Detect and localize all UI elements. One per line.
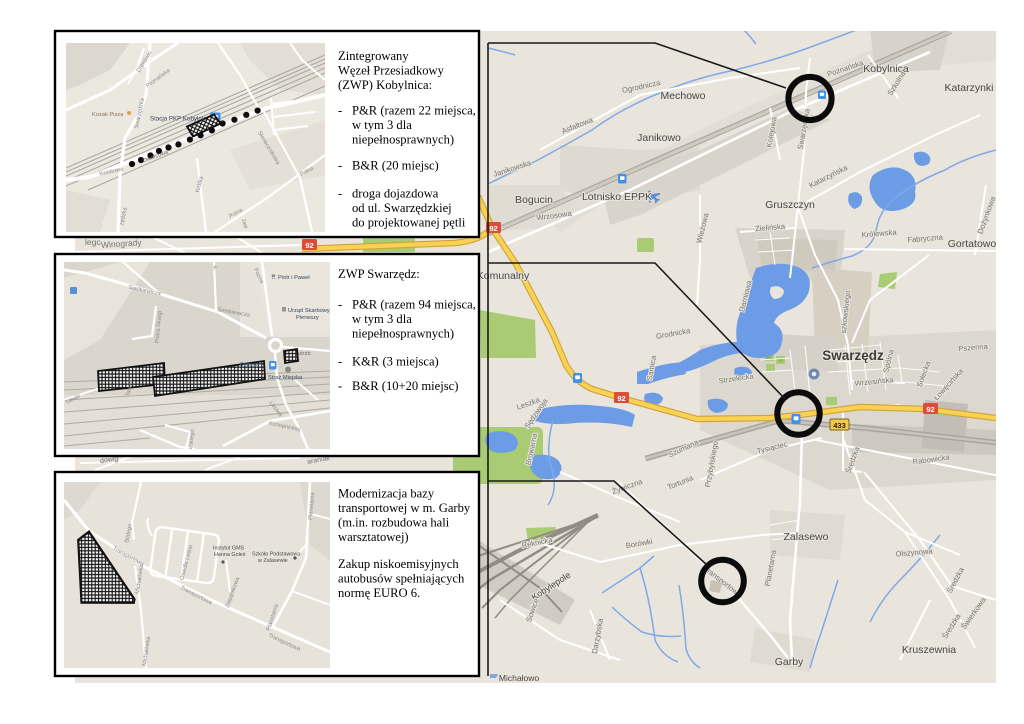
svg-text:autobusów spełniających: autobusów spełniających [338,572,465,586]
svg-text:Katarzynki: Katarzynki [944,82,993,94]
svg-text:Stacja PKP Kobylnic: Stacja PKP Kobylnic [150,116,206,123]
svg-text:Swarzędz: Swarzędz [822,348,884,363]
svg-text:(m.in. rozbudowa hali: (m.in. rozbudowa hali [338,516,450,530]
svg-text:droga dojazdowa: droga dojazdowa [352,187,439,201]
svg-text:Zakup niskoemisyjnych: Zakup niskoemisyjnych [338,557,459,571]
svg-text:ZWP Swarzędz:: ZWP Swarzędz: [338,267,420,281]
svg-text:Pierwszy: Pierwszy [296,315,319,321]
svg-text:Kruszewnia: Kruszewnia [902,644,956,656]
svg-text:Hanna Goleś: Hanna Goleś [214,552,246,558]
svg-text:do projektowanej pętli: do projektowanej pętli [352,216,466,230]
svg-text:w tym 3 dla: w tym 3 dla [352,118,412,132]
svg-text:-: - [338,379,342,393]
svg-text:-: - [338,187,342,201]
svg-text:Węzeł Przesiadkowy: Węzeł Przesiadkowy [338,64,445,78]
svg-text:niepełnosprawnych): niepełnosprawnych) [352,327,454,341]
svg-text:433: 433 [833,421,846,430]
svg-text:Mechowo: Mechowo [661,90,706,102]
svg-text:-: - [338,355,342,369]
svg-text:Garby: Garby [775,656,804,668]
svg-text:92: 92 [926,405,934,414]
svg-text:normę EURO 6.: normę EURO 6. [338,586,420,600]
svg-text:Piotr i Paweł: Piotr i Paweł [278,275,310,281]
svg-text:B&R (20 miejsc): B&R (20 miejsc) [352,159,439,173]
svg-text:K&R (3 miejsca): K&R (3 miejsca) [352,355,439,369]
svg-text:Modernizacja bazy: Modernizacja bazy [338,487,435,501]
svg-text:92: 92 [305,241,313,250]
svg-text:warsztatowej): warsztatowej) [338,530,409,544]
svg-text:niepełnosprawnych): niepełnosprawnych) [352,133,454,147]
svg-text:Gruszczyn: Gruszczyn [765,199,815,211]
svg-text:92: 92 [617,394,625,403]
svg-text:92: 92 [489,224,497,233]
svg-text:Zintegrowany: Zintegrowany [338,49,409,63]
svg-text:Dworco: Dworco [240,362,259,368]
svg-text:Straż Miejska: Straż Miejska [268,375,303,381]
svg-text:B&R (10+20 miejsc): B&R (10+20 miejsc) [352,379,458,393]
svg-text:-: - [338,298,342,312]
svg-text:Janikowo: Janikowo [637,132,681,144]
svg-text:transportowej w m. Garby: transportowej w m. Garby [338,501,471,515]
svg-text:Bogucin: Bogucin [515,194,553,206]
svg-text:Instytut GMS: Instytut GMS [213,546,245,552]
svg-text:w Zalasewie: w Zalasewie [257,558,288,564]
svg-text:Urząd Skarbowy: Urząd Skarbowy [288,308,330,314]
svg-text:(ZWP) Kobylnica:: (ZWP) Kobylnica: [338,78,432,92]
svg-text:Gortatowo: Gortatowo [948,238,997,250]
svg-text:Michałowo: Michałowo [499,673,539,683]
svg-text:-: - [338,104,342,118]
svg-text:Szkoła Podstawowa: Szkoła Podstawowa [252,552,300,558]
svg-text:Zalasewo: Zalasewo [784,531,829,543]
svg-text:utrzb: utrzb [298,351,311,357]
svg-text:-: - [338,159,342,173]
svg-text:w tym 3 dla: w tym 3 dla [352,312,412,326]
svg-text:od ul. Swarzędzkiej: od ul. Swarzędzkiej [352,201,452,215]
svg-text:P&R (razem 94 miejsca,: P&R (razem 94 miejsca, [352,298,476,312]
svg-text:P&R (razem 22 miejsca,: P&R (razem 22 miejsca, [352,104,476,118]
svg-text:Lotnisko EPPK: Lotnisko EPPK [582,191,652,203]
svg-text:Komunalny: Komunalny [477,270,530,282]
svg-text:Kozak Pizza: Kozak Pizza [92,112,124,118]
